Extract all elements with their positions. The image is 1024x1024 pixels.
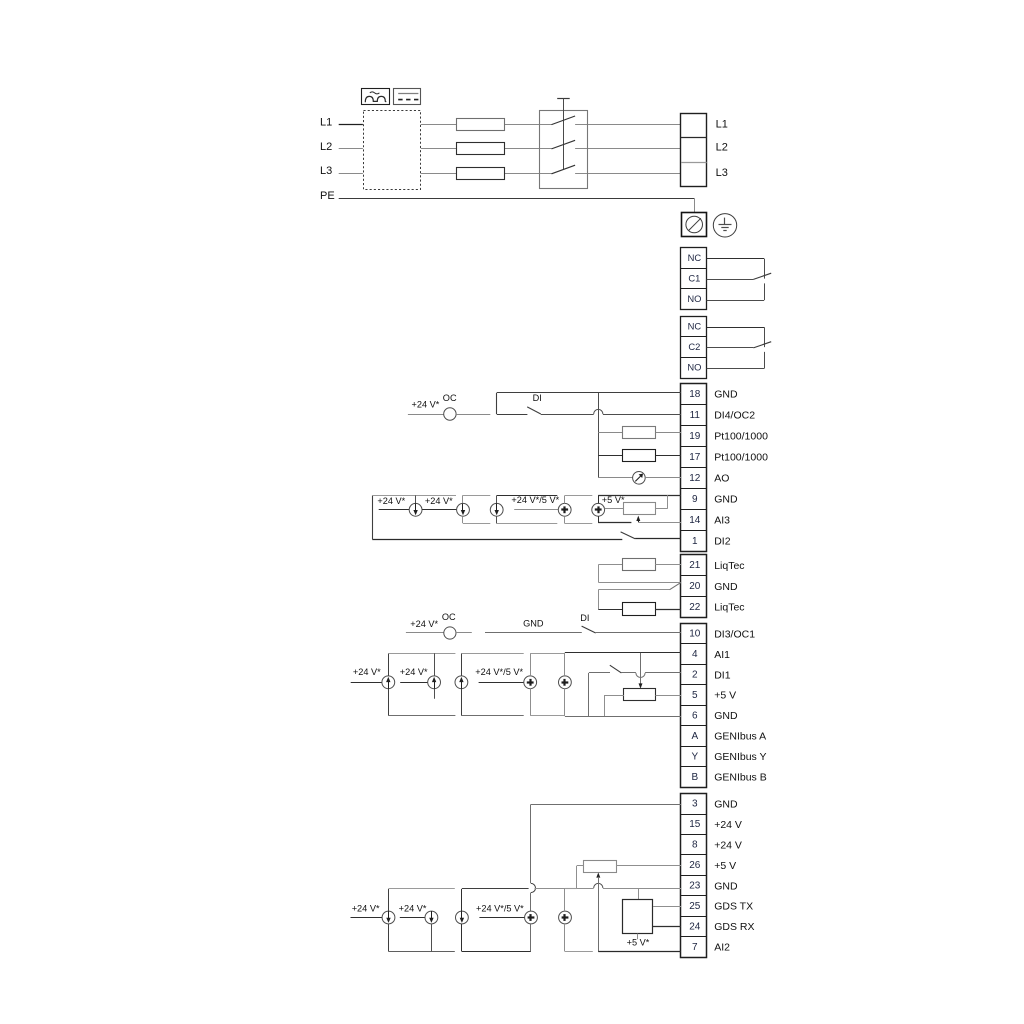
svg-text:PE: PE <box>320 190 335 202</box>
svg-text:GDS RX: GDS RX <box>714 921 754 933</box>
svg-text:DI2: DI2 <box>714 536 731 548</box>
svg-text:+24 V*/5 V*: +24 V*/5 V* <box>476 904 524 914</box>
svg-text:3: 3 <box>692 799 698 810</box>
svg-text:14: 14 <box>689 515 701 526</box>
svg-text:+24 V: +24 V <box>714 819 742 831</box>
svg-text:24: 24 <box>689 921 701 932</box>
svg-text:2: 2 <box>692 669 698 680</box>
svg-text:AI1: AI1 <box>714 649 730 661</box>
svg-text:GENIbus B: GENIbus B <box>714 772 767 784</box>
svg-text:OC: OC <box>442 612 456 622</box>
svg-text:GENIbus Y: GENIbus Y <box>714 751 766 763</box>
svg-text:AI2: AI2 <box>714 942 730 954</box>
svg-text:+24 V*: +24 V* <box>425 496 453 506</box>
svg-text:LiqTec: LiqTec <box>714 602 744 614</box>
svg-text:L2: L2 <box>716 142 728 154</box>
svg-text:+5 V*: +5 V* <box>602 495 625 505</box>
svg-text:8: 8 <box>692 840 698 851</box>
svg-text:C2: C2 <box>688 341 700 352</box>
svg-text:+24 V*: +24 V* <box>399 904 427 914</box>
svg-text:C1: C1 <box>688 272 700 283</box>
svg-text:1: 1 <box>692 536 698 547</box>
svg-text:+24 V*/5 V*: +24 V*/5 V* <box>511 495 559 505</box>
svg-text:DI: DI <box>533 393 542 403</box>
svg-text:DI4/OC2: DI4/OC2 <box>714 410 755 422</box>
svg-text:GDS TX: GDS TX <box>714 901 753 913</box>
svg-text:26: 26 <box>689 860 701 871</box>
svg-text:18: 18 <box>689 389 701 400</box>
svg-text:A: A <box>691 731 698 742</box>
svg-text:GENIbus A: GENIbus A <box>714 731 766 743</box>
svg-text:4: 4 <box>692 649 698 660</box>
svg-text:OC: OC <box>443 393 457 403</box>
svg-text:+5 V*: +5 V* <box>627 938 650 948</box>
svg-text:19: 19 <box>689 431 701 442</box>
svg-text:+24 V*: +24 V* <box>353 667 381 677</box>
svg-text:LiqTec: LiqTec <box>714 560 744 572</box>
svg-text:NO: NO <box>687 362 701 373</box>
svg-text:25: 25 <box>689 901 701 912</box>
svg-text:DI3/OC1: DI3/OC1 <box>714 628 755 640</box>
svg-text:+5 V: +5 V <box>714 690 736 702</box>
svg-text:L3: L3 <box>320 165 332 177</box>
svg-text:17: 17 <box>689 452 701 463</box>
svg-text:GND: GND <box>714 581 738 593</box>
svg-text:+24 V*: +24 V* <box>377 496 405 506</box>
svg-text:L1: L1 <box>320 116 332 128</box>
svg-text:22: 22 <box>689 602 701 613</box>
svg-text:20: 20 <box>689 581 701 592</box>
svg-text:+24 V*: +24 V* <box>412 399 440 409</box>
svg-text:NC: NC <box>688 252 702 263</box>
svg-text:GND: GND <box>714 494 738 506</box>
svg-text:AO: AO <box>714 473 729 485</box>
svg-text:GND: GND <box>523 619 544 629</box>
svg-text:B: B <box>691 772 698 783</box>
svg-text:L2: L2 <box>320 141 332 153</box>
svg-text:GND: GND <box>714 710 738 722</box>
svg-text:Y: Y <box>691 751 698 762</box>
svg-text:6: 6 <box>692 710 698 721</box>
svg-text:+24 V*: +24 V* <box>352 904 380 914</box>
svg-text:15: 15 <box>689 819 701 830</box>
svg-text:10: 10 <box>689 629 701 640</box>
svg-text:12: 12 <box>689 473 701 484</box>
svg-text:NO: NO <box>687 293 701 304</box>
svg-text:Pt100/1000: Pt100/1000 <box>714 431 768 443</box>
svg-text:L1: L1 <box>716 119 728 131</box>
svg-text:GND: GND <box>714 880 738 892</box>
svg-text:+24 V*/5 V*: +24 V*/5 V* <box>475 667 523 677</box>
svg-text:GND: GND <box>714 799 738 811</box>
svg-text:+24 V*: +24 V* <box>400 667 428 677</box>
svg-text:DI: DI <box>580 613 589 623</box>
svg-text:23: 23 <box>689 880 701 891</box>
svg-text:9: 9 <box>692 494 698 505</box>
svg-text:NC: NC <box>688 320 702 331</box>
svg-text:21: 21 <box>689 560 701 571</box>
svg-text:+24 V: +24 V <box>714 839 742 851</box>
svg-text:DI1: DI1 <box>714 669 731 681</box>
svg-text:+5 V: +5 V <box>714 860 736 872</box>
svg-text:7: 7 <box>692 942 698 953</box>
svg-text:+24 V*: +24 V* <box>410 619 438 629</box>
svg-text:AI3: AI3 <box>714 515 730 527</box>
svg-text:L3: L3 <box>716 167 728 179</box>
svg-text:Pt100/1000: Pt100/1000 <box>714 452 768 464</box>
svg-text:GND: GND <box>714 389 738 401</box>
svg-text:5: 5 <box>692 690 698 701</box>
svg-text:11: 11 <box>690 410 701 421</box>
